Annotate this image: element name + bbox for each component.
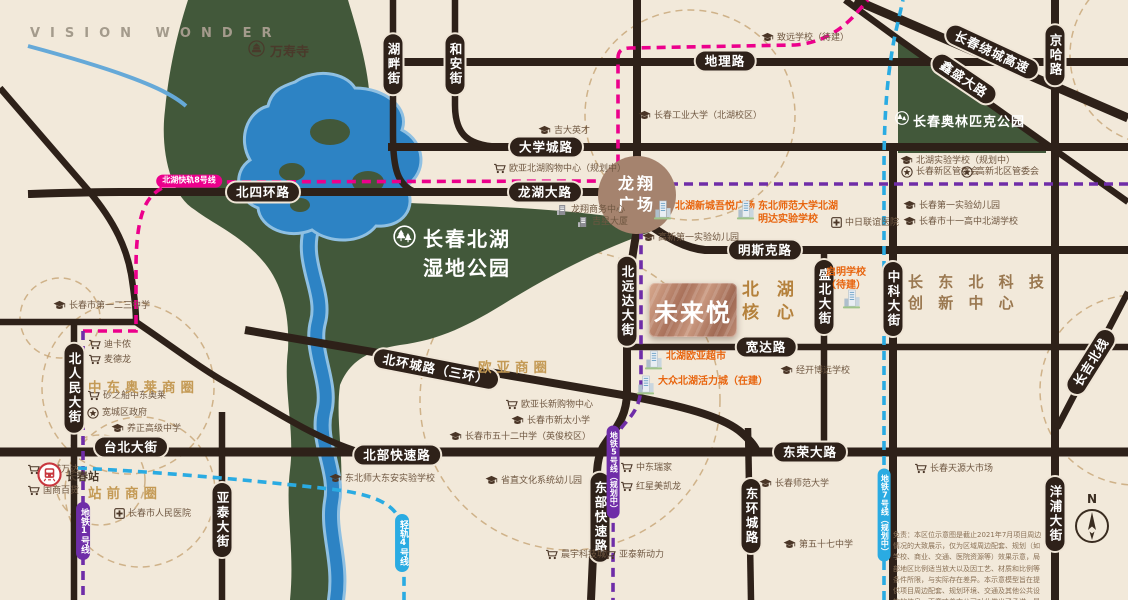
shopping-cart-icon xyxy=(88,339,101,355)
poi-label: 长春市十一高中北湖学校 xyxy=(919,217,1018,229)
poi: 东北师范大学北湖明达实验学校 xyxy=(736,200,838,226)
poi-label: 长春第一实验幼儿园 xyxy=(919,201,1000,213)
poi-label: 长春天源大市场 xyxy=(930,464,993,476)
poi: 北湖欧亚超市 xyxy=(644,350,726,376)
poi: 欧亚北湖购物中心（规划中） xyxy=(493,164,626,179)
school-icon xyxy=(485,475,498,491)
poi-label: 宽城区政府 xyxy=(102,408,147,420)
road-pill: 和安街 xyxy=(444,32,467,96)
metro-line-pill: 北湖快轨8号线 xyxy=(156,175,222,188)
road-pill: 宽达路 xyxy=(735,336,798,359)
road-pill: 台北大街 xyxy=(93,436,169,459)
road-pill: 长吉北线 xyxy=(1061,324,1121,401)
road-pill: 北远达大街 xyxy=(616,255,639,348)
poi-label: 致远学校（待建） xyxy=(777,33,849,45)
road-pill: 地理路 xyxy=(694,50,757,73)
poi-label: 高新第一实验幼儿园 xyxy=(658,233,739,245)
school-icon xyxy=(903,216,916,232)
school-icon xyxy=(449,431,462,447)
metro-line-pill: 轻轨4号线 xyxy=(395,514,409,572)
poi-label: 经开博远学校 xyxy=(796,366,850,378)
school-icon xyxy=(638,110,651,126)
poi-label: 欧亚长新购物中心 xyxy=(521,400,593,412)
school-icon xyxy=(111,423,124,439)
road-pill: 湖畔街 xyxy=(382,32,405,96)
poi: 红星美凯龙 xyxy=(620,482,681,497)
shopping-cart-icon xyxy=(914,463,927,479)
poi-label: 高新北区管委会 xyxy=(976,167,1039,179)
poi-label: 省直文化系统幼儿园 xyxy=(501,476,582,488)
poi-label: 长春市人民医院 xyxy=(128,509,191,521)
poi-label: 长春工业大学（北湖校区） xyxy=(654,111,762,123)
road-pill: 洋浦大街 xyxy=(1044,475,1067,553)
government-star-icon xyxy=(961,166,973,183)
road-pill: 中科大街 xyxy=(882,260,905,338)
poi: 东北师大东安实验学校 xyxy=(329,474,435,489)
school-icon xyxy=(53,300,66,316)
train-station-poi: 长春站 xyxy=(37,462,99,490)
poi-label: 晨宇科技城 xyxy=(561,550,606,562)
school-icon xyxy=(903,200,916,216)
poi-label: 长春市新太小学 xyxy=(527,416,590,428)
shopping-cart-icon xyxy=(620,481,633,497)
poi-label: 吉大英才 xyxy=(554,126,590,138)
poi: 长春市第一二三中学 xyxy=(53,301,150,316)
poi-label: 红星美凯龙 xyxy=(636,482,681,494)
road-pill: 北部快速路 xyxy=(352,444,442,467)
poi: 大众北湖活力城（在建） xyxy=(636,375,768,401)
business-circle-label: 中东奥莱商圈 xyxy=(88,376,199,396)
poi: 宽城区政府 xyxy=(87,408,147,424)
poi: 高新北区管委会 xyxy=(961,167,1039,183)
poi: 麦德龙 xyxy=(88,355,131,370)
poi: 晨宇科技城 xyxy=(545,550,606,565)
poi-label: 长春市五十二中学（英俊校区） xyxy=(465,432,591,444)
poi-label: 东北师大东安实验学校 xyxy=(345,474,435,486)
metro-line-pill: 地铁7号线（规划中） xyxy=(878,469,891,562)
poi: 养正高级中学 xyxy=(111,424,181,439)
school-icon xyxy=(642,232,655,248)
shopping-cart-icon xyxy=(88,354,101,370)
shopping-cart-icon xyxy=(620,462,633,478)
poi: 欧亚长新购物中心 xyxy=(505,400,593,415)
poi: 长春市人民医院 xyxy=(114,509,191,524)
school-icon xyxy=(511,415,524,431)
school-icon xyxy=(538,125,551,141)
poi-label: 欧亚北湖购物中心（规划中） xyxy=(509,164,626,176)
road-pill: 北人民大街 xyxy=(63,342,86,435)
poi-label: 长春师范大学 xyxy=(775,479,829,491)
shopping-cart-icon xyxy=(545,549,558,565)
poi-label: 第五十七中学 xyxy=(799,540,853,552)
poi: 长春师范大学 xyxy=(759,479,829,494)
poi: 长春天源大市场 xyxy=(914,464,993,479)
metro-line-pill: 地铁1号线 xyxy=(76,502,90,560)
shopping-cart-icon xyxy=(493,163,506,179)
road-pill: 京哈路 xyxy=(1044,23,1067,87)
shopping-cart-icon xyxy=(505,399,518,415)
poi: 长春工业大学（北湖校区） xyxy=(638,111,762,126)
road-pill: 龙湖大路 xyxy=(507,181,583,204)
poi: 长春市新太小学 xyxy=(511,416,590,431)
poi-label: 中日联谊医院 xyxy=(845,218,899,230)
poi: 省直文化系统幼儿园 xyxy=(485,476,582,491)
poi-label: 北湖欧亚超市 xyxy=(666,350,726,363)
map-canvas: VISION WONDER 龙翔 广场 未来悦 北 湖 核 心 区 长 东 北 … xyxy=(0,0,1128,600)
poi-label: 龙翔商务中心 xyxy=(571,205,625,217)
building-icon xyxy=(636,374,655,401)
poi-label: 东北师范大学北湖明达实验学校 xyxy=(758,200,838,226)
hospital-cross-icon xyxy=(114,508,125,524)
poi-label: 养正高级中学 xyxy=(127,424,181,436)
poi: 吉星大厦 xyxy=(577,217,628,233)
school-icon xyxy=(759,478,772,494)
poi-label: 迪卡侬 xyxy=(104,340,131,352)
office-building-icon xyxy=(577,216,589,233)
school-icon xyxy=(783,539,796,555)
poi: 第五十七中学 xyxy=(783,540,853,555)
poi-label: 长春市第一二三中学 xyxy=(69,301,150,313)
poi: 长春市十一高中北湖学校 xyxy=(903,217,1018,232)
school-icon xyxy=(329,473,342,489)
building-icon xyxy=(644,349,663,376)
poi-label: 中东瑞家 xyxy=(636,463,672,475)
poi: 经开博远学校 xyxy=(780,366,850,381)
poi: 亚泰新动力 xyxy=(603,550,664,565)
poi-label: 亚泰新动力 xyxy=(619,550,664,562)
building-icon xyxy=(736,199,755,226)
building-icon xyxy=(653,199,672,226)
poi: 迪卡侬 xyxy=(88,340,131,355)
government-star-icon xyxy=(901,166,913,183)
poi: 高新第一实验幼儿园 xyxy=(642,233,739,248)
business-circle-label: 欧亚商圈 xyxy=(478,356,552,376)
road-pill: 北四环路 xyxy=(225,181,301,204)
metro-line-pill: 地铁5号线（规划中） xyxy=(607,426,620,519)
road-pill: 东荣大路 xyxy=(772,441,848,464)
poi: 中日联谊医院 xyxy=(831,218,899,233)
labels-layer: 湖畔街和安街地理路大学城路北四环路龙湖大路明斯克路宽达路北环城路（三环）台北大街… xyxy=(0,0,1128,600)
road-pill: 亚泰大街 xyxy=(211,481,234,559)
school-icon xyxy=(761,32,774,48)
government-star-icon xyxy=(87,407,99,424)
poi: 中东瑞家 xyxy=(620,463,672,478)
shopping-cart-icon xyxy=(603,549,616,565)
school-icon xyxy=(780,365,793,381)
train-icon xyxy=(37,462,62,490)
building-icon xyxy=(842,288,861,315)
poi-label: 吉星大厦 xyxy=(592,217,628,229)
office-building-icon xyxy=(556,204,568,221)
poi: 长春第一实验幼儿园 xyxy=(903,201,1000,216)
poi-label: 大众北湖活力城（在建） xyxy=(658,375,768,388)
business-circle-label: 站前商圈 xyxy=(88,482,162,502)
poi-label: 麦德龙 xyxy=(104,355,131,367)
poi: 致远学校（待建） xyxy=(761,33,849,48)
poi: 吉大英才 xyxy=(538,126,590,141)
poi: 长春市五十二中学（英俊校区） xyxy=(449,432,591,447)
